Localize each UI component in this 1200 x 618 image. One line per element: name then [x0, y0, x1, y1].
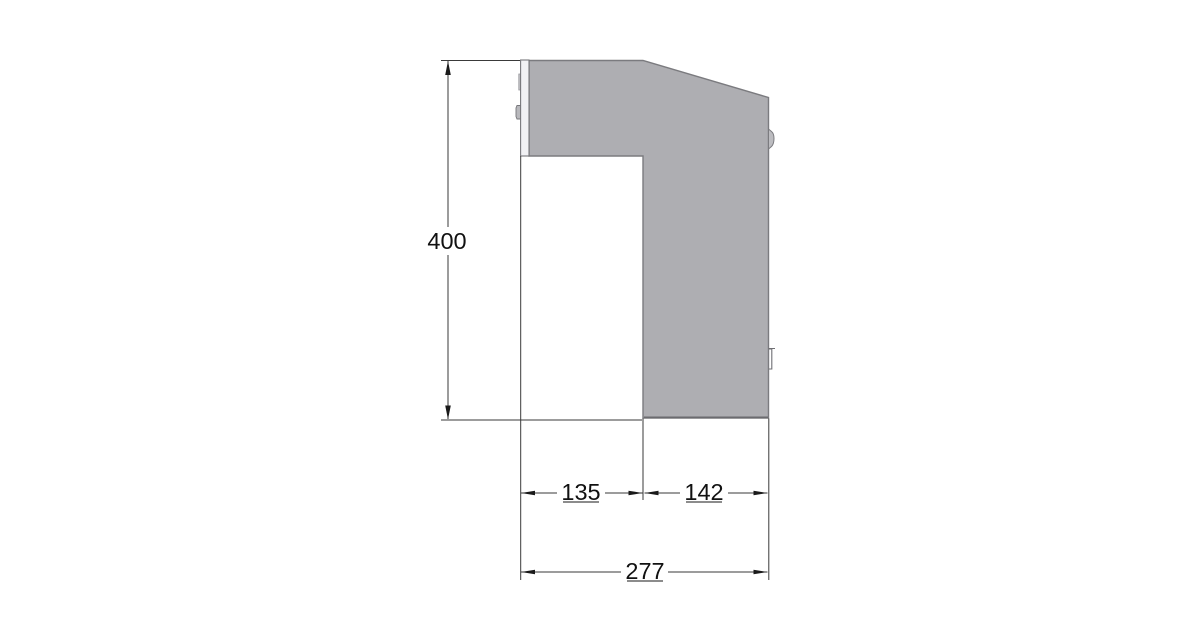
svg-text:277: 277: [625, 558, 664, 584]
svg-text:400: 400: [427, 228, 466, 254]
svg-text:135: 135: [561, 479, 600, 505]
svg-text:142: 142: [684, 479, 723, 505]
